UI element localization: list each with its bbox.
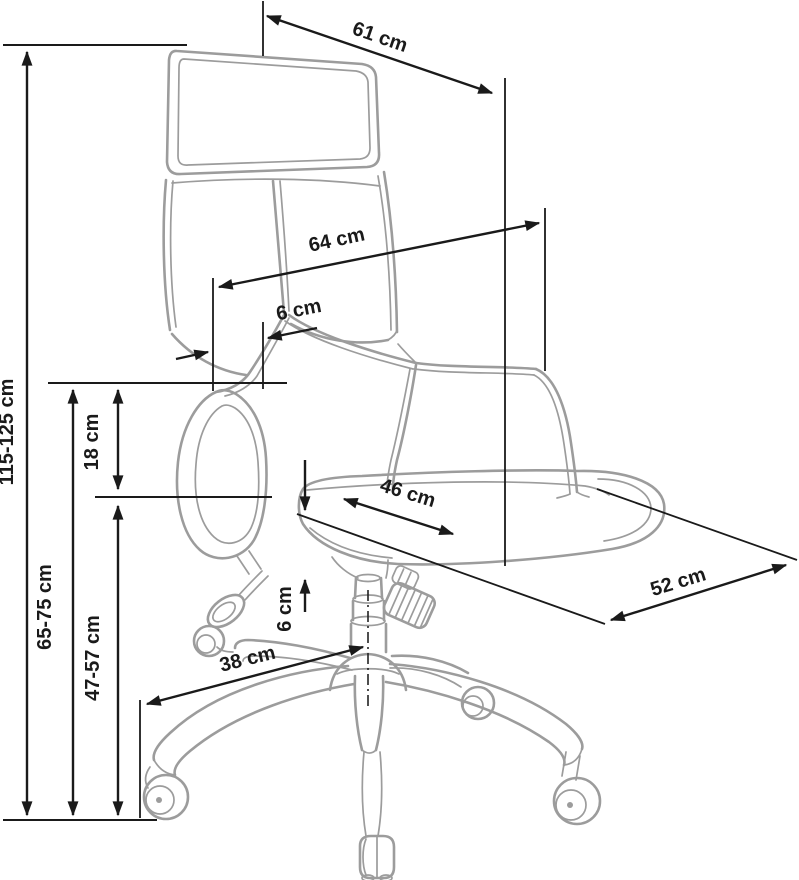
- label-backrest-to-armrest: 18 cm: [81, 414, 103, 471]
- projection-52-upper: [597, 489, 797, 560]
- frame-right-support: [536, 369, 577, 492]
- frame-right-foot-a: [577, 492, 589, 497]
- backrest-top-seam: [172, 179, 380, 186]
- leg-right-bottom: [386, 682, 564, 765]
- label-backrest-width: 64 cm: [307, 223, 367, 256]
- leg-front-right-edge: [376, 676, 383, 750]
- caster-back-left-hub: [197, 635, 215, 653]
- label-seat-depth: 52 cm: [648, 563, 709, 601]
- caster-back-left: [194, 626, 224, 656]
- tension-knob-collar: [391, 564, 420, 590]
- label-seat-edge-offset: 6 cm: [274, 586, 296, 632]
- backrest-left-edge: [164, 180, 170, 330]
- armrest-stem-a: [237, 556, 249, 574]
- tilt-lever-stem-a: [239, 571, 262, 595]
- dimension-annotations: 115-125 cm 65-75 cm 47-57 cm 18 cm 6 cm …: [0, 1, 797, 820]
- frame-right-support-inner: [534, 375, 570, 494]
- backrest-corner-seam: [388, 330, 397, 340]
- gas-lift-top: [356, 575, 380, 582]
- label-headrest-width: 61 cm: [350, 18, 411, 57]
- frame-down-arm: [393, 365, 416, 488]
- backrest-bottom-left-seam: [172, 334, 246, 375]
- frame-cross-arm: [416, 363, 536, 369]
- headrest-inner-line: [178, 59, 370, 165]
- label-overall-height: 115-125 cm: [0, 379, 18, 486]
- caster-front-detail: [363, 837, 377, 877]
- backrest-left-edge-inner: [171, 181, 176, 327]
- frame-right-foot-b: [557, 494, 570, 498]
- caster-right-axle: [567, 802, 573, 808]
- dim-seat-width: [344, 499, 453, 534]
- dim-backrest-width: [219, 223, 539, 287]
- seat-top-edge: [307, 482, 609, 495]
- caster-front-mount: [362, 752, 381, 836]
- headrest-outline: [167, 51, 379, 174]
- frame-down-arm-inner: [387, 369, 410, 488]
- label-armrest-height: 65-75 cm: [34, 564, 56, 650]
- frame-right-brace-inner: [285, 321, 413, 369]
- frame-left-brace: [216, 315, 284, 392]
- label-seat-width: 46 cm: [377, 474, 438, 512]
- seat-mechanism-a: [332, 557, 358, 578]
- drawing-canvas: 115-125 cm 65-75 cm 47-57 cm 18 cm 6 cm …: [0, 0, 799, 880]
- base-legs: [144, 626, 600, 880]
- armrest-pad-inner: [195, 405, 258, 543]
- chair-dimension-diagram: 115-125 cm 65-75 cm 47-57 cm 18 cm 6 cm …: [0, 0, 799, 880]
- armrest-pad-outline: [177, 390, 267, 558]
- leg-left-cap: [154, 760, 175, 775]
- leg-left-bottom: [175, 684, 354, 775]
- frame-cross-arm-inner: [414, 369, 534, 375]
- caster-left-axle: [156, 797, 162, 803]
- frame-left-brace-inner: [225, 318, 289, 396]
- chair-artwork: [144, 51, 664, 880]
- leg-right-top: [390, 664, 582, 749]
- label-seat-height: 47-57 cm: [82, 615, 104, 701]
- tilt-lever-stem-b: [245, 576, 268, 600]
- seat-right-cap-inner: [598, 479, 651, 541]
- leg-front-left-edge: [355, 676, 362, 750]
- armrest-stem-b: [249, 551, 261, 569]
